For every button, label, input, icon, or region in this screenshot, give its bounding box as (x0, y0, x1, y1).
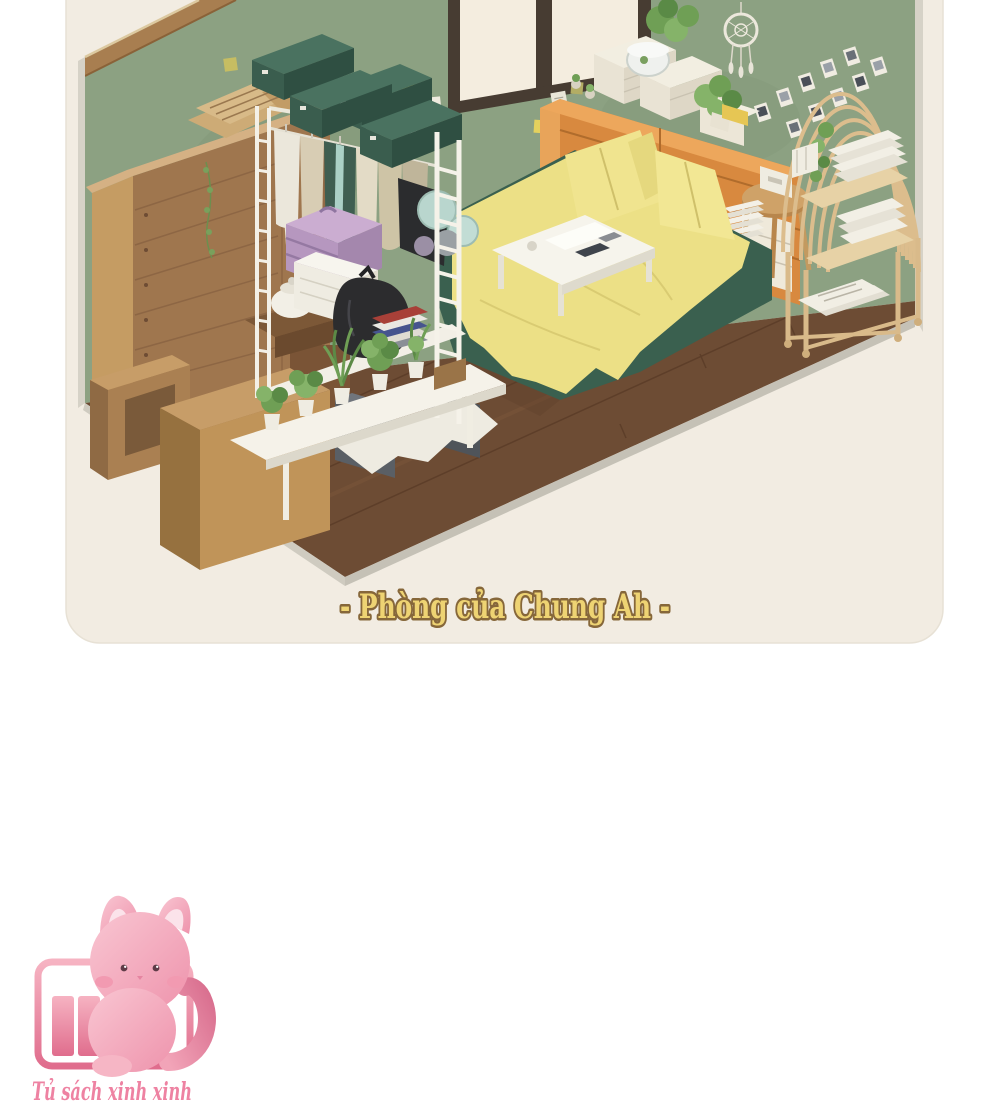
comic-page: - Phòng của Chung Ah - Tủ sách xi (0, 0, 1000, 1114)
cat-eye-glint (124, 966, 126, 968)
mascot-cat (88, 896, 207, 1077)
cat-eye (121, 965, 128, 972)
page-art: - Phòng của Chung Ah - Tủ sách xi (0, 0, 1000, 1114)
publisher-mascot: Tủ sách xinh xinh (32, 896, 207, 1106)
cat-paw (92, 1055, 132, 1077)
wall-left-cut-edge (78, 57, 85, 408)
sticky-note (223, 57, 238, 72)
cat-eye-glint (156, 966, 158, 968)
window-pane-left (460, 0, 536, 104)
cat-blush (167, 976, 185, 988)
window-frame-left (448, 0, 460, 114)
window-frame-center (536, 0, 552, 99)
mascot-label: Tủ sách xinh xinh (32, 1077, 192, 1106)
cat-blush (95, 976, 113, 988)
cat-eye (153, 965, 160, 972)
caption: - Phòng của Chung Ah - (340, 587, 670, 627)
cup-on-tray (527, 241, 537, 251)
fishbowl (627, 42, 669, 76)
